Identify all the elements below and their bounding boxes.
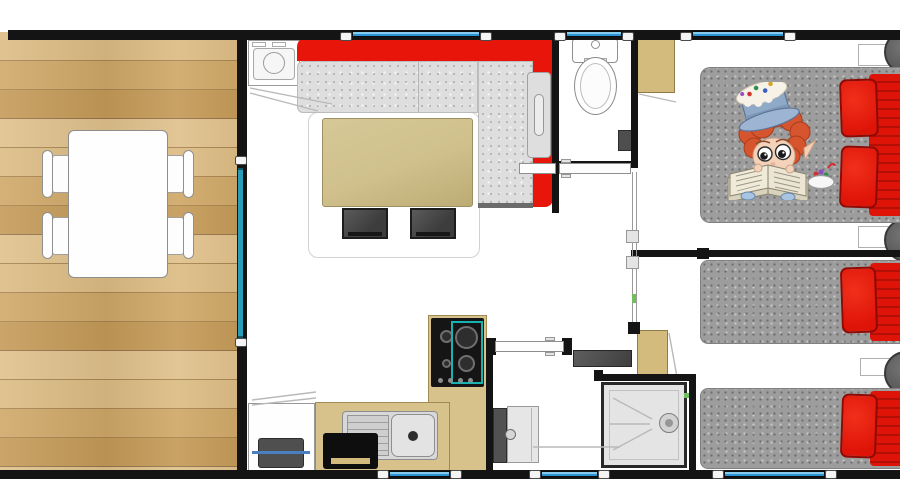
sofa-back-top [297, 37, 553, 61]
bathroom-cabinet-swing [669, 333, 677, 377]
door-marker-green [632, 294, 636, 303]
toilet-flush-button [591, 40, 600, 49]
floor-plan [0, 0, 900, 500]
wardrobe [637, 38, 675, 93]
glass-door-hardware [235, 156, 247, 165]
bedroom-sliding-door-rail [636, 172, 637, 322]
sink-drain [408, 431, 418, 441]
sofa-side-table-handle [534, 94, 544, 136]
chair-seat [166, 155, 184, 193]
mascot-pupil [778, 150, 786, 158]
window-top-living [352, 31, 480, 37]
window-latch [825, 470, 837, 479]
glass-door-hardware [235, 338, 247, 347]
wall-sliding-door-anchor [628, 322, 640, 334]
wc-door-handle [561, 159, 571, 163]
window-latch [622, 32, 634, 41]
wall-shower-post [594, 370, 603, 381]
hob-knob [468, 378, 473, 383]
wc-door-leaf-left [519, 163, 556, 174]
sofa-end-shadow [478, 203, 533, 208]
chair-back [183, 212, 194, 259]
terrace-glass-door [238, 168, 243, 338]
hob-knob [438, 378, 443, 383]
wall-wc-left [552, 30, 559, 213]
cabinet-lid-line [252, 392, 316, 400]
wall-wc-right [631, 33, 638, 168]
mascot-hand [754, 164, 762, 172]
dining-table [68, 130, 168, 278]
mascot-shoe [781, 193, 795, 200]
shower-marker-green [684, 393, 689, 398]
ottoman-2 [410, 208, 456, 239]
window-bottom-kitchen [389, 471, 450, 477]
ottoman-base [348, 232, 382, 236]
single-bed-2-pillow [840, 393, 878, 458]
window-bottom-bathroom [541, 471, 598, 477]
wall-bedroom-divider [631, 250, 900, 257]
washbasin-divider [531, 408, 532, 461]
chair-back [42, 150, 53, 198]
window-latch [529, 470, 541, 479]
coffee-table [322, 118, 473, 207]
toilet-bowl-inner [580, 63, 611, 109]
mascot-hand [786, 165, 794, 173]
window-latch [377, 470, 389, 479]
window-latch [680, 32, 692, 41]
window-top-wc [566, 31, 622, 37]
wall-divider-post [697, 248, 709, 259]
sofa-seat-horizontal [297, 61, 478, 113]
window-latch [784, 32, 796, 41]
bathroom-door-handle [545, 337, 555, 341]
washer-control [252, 42, 266, 47]
window-latch [480, 32, 492, 41]
cooler-handle-blue [252, 451, 310, 454]
ottoman-1 [342, 208, 388, 239]
chair-back [42, 212, 53, 259]
bathroom-door-handle [545, 352, 555, 356]
window-latch [554, 32, 566, 41]
window-latch [450, 470, 462, 479]
shower-drain-center [665, 419, 673, 427]
hob-knob [458, 378, 463, 383]
window-top-bedroom [692, 31, 784, 37]
wc-wall-box [618, 130, 632, 151]
window-latch [598, 470, 610, 479]
hob-glass-lid-frame [451, 321, 483, 384]
mascot-eye-glint [764, 154, 766, 156]
wall-shower-top [594, 374, 696, 381]
mascot-book [728, 165, 808, 200]
bathroom-door-leaf [495, 341, 564, 352]
wall-shower-right [689, 374, 696, 479]
wardrobe-door-swing [639, 94, 676, 102]
washbasin-faucet [505, 429, 516, 440]
window-latch [712, 470, 724, 479]
radiator-shelf [573, 350, 632, 367]
double-bed-pillow-1 [839, 78, 879, 137]
mascot-shoe [741, 192, 755, 200]
sofa-cushion-seam [418, 62, 419, 112]
chair-seat [166, 217, 184, 255]
double-bed-pillow-2 [839, 145, 879, 208]
hob-burner-small [442, 359, 451, 368]
hob-knob [448, 378, 453, 383]
sofa-seat-vertical [478, 61, 533, 207]
wc-door-handle [561, 174, 571, 178]
oven-handle-tan [331, 458, 370, 464]
sliding-door-handle [626, 256, 639, 269]
mascot-illustration [704, 82, 836, 200]
washer-control [272, 42, 286, 47]
mascot-eye-glint [782, 152, 784, 154]
window-bottom-bedroom [724, 471, 825, 477]
wc-door-leaf [559, 163, 631, 174]
single-bed-1-pillow [840, 266, 878, 333]
mascot-candy-bowl [808, 164, 835, 189]
washer-door-circle [263, 52, 285, 74]
mascot-pupil [760, 152, 768, 160]
window-latch [340, 32, 352, 41]
chair-back [183, 150, 194, 198]
wall-bathroom-left [486, 341, 493, 479]
sliding-door-handle [626, 230, 639, 243]
ottoman-base [416, 232, 450, 236]
bathroom-cabinet [637, 330, 668, 378]
